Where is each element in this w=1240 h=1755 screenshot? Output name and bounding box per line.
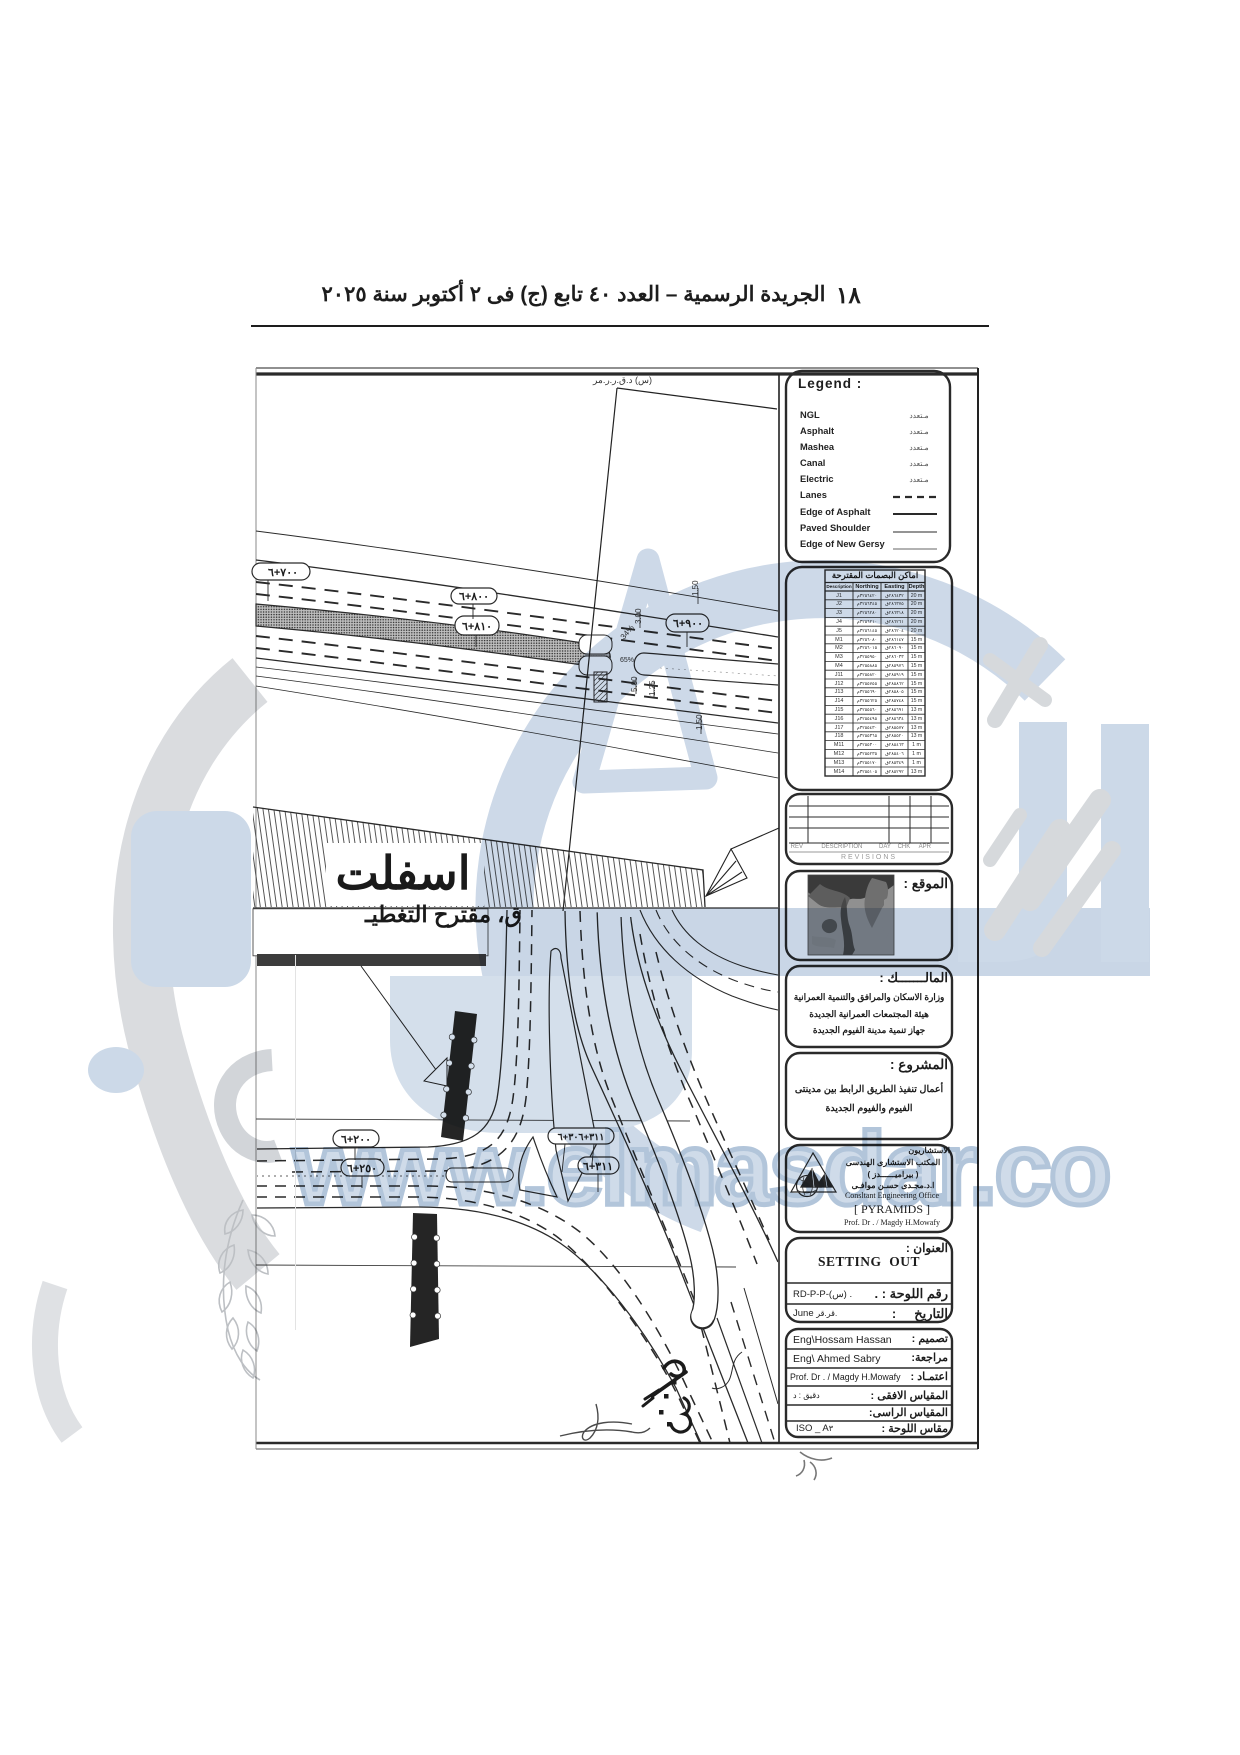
svg-text:‭٦+٩٠٠‭: ‭٦+٩٠٠‭ [673,618,703,630]
svg-text:34%: 34% [619,623,636,641]
svg-text:1.50: 1.50 [695,714,704,730]
svg-text:1.25: 1.25 [648,680,657,696]
svg-text:‭٦+٣٠٦+٣١١‭: ‭٦+٣٠٦+٣١١‭ [558,1132,605,1143]
svg-text:‭٦+٢٠٠‭: ‭٦+٢٠٠‭ [341,1134,371,1146]
svg-text:65%: 65% [620,657,634,664]
svg-text:‭٦+٨٠٠‭: ‭٦+٨٠٠‭ [459,591,489,603]
svg-text:3.00: 3.00 [634,608,643,624]
svg-text:5.00: 5.00 [630,676,639,692]
svg-text:‭٦+٨١٠‭: ‭٦+٨١٠‭ [462,621,492,633]
svg-text:1.50: 1.50 [691,580,700,596]
svg-text:(س) د.ق.ر.ر.مر: (س) د.ق.ر.ر.مر [592,375,652,386]
svg-text:‭٦+٧٠٠‭: ‭٦+٧٠٠‭ [268,567,298,579]
svg-text:‭٦+٣١١‭: ‭٦+٣١١‭ [583,1161,613,1173]
svg-text:‭٦+٢٥٠‭: ‭٦+٢٥٠‭ [347,1163,377,1175]
